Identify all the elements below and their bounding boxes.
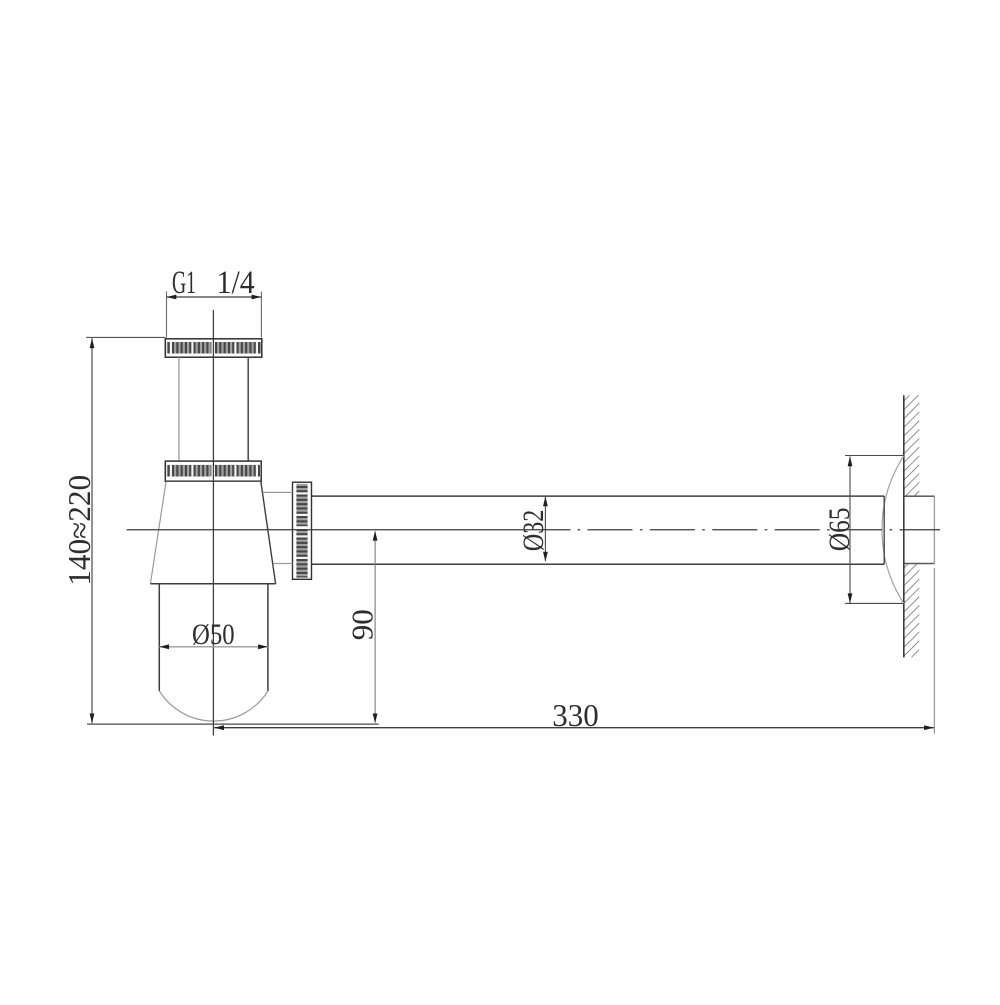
svg-text:1/4: 1/4 bbox=[217, 265, 255, 301]
svg-text:140≈220: 140≈220 bbox=[61, 475, 97, 586]
svg-text:Ø32: Ø32 bbox=[517, 510, 550, 551]
svg-text:330: 330 bbox=[552, 697, 599, 733]
svg-text:90: 90 bbox=[345, 609, 380, 640]
svg-text:Ø65: Ø65 bbox=[823, 508, 856, 552]
svg-text:Ø50: Ø50 bbox=[192, 618, 235, 651]
